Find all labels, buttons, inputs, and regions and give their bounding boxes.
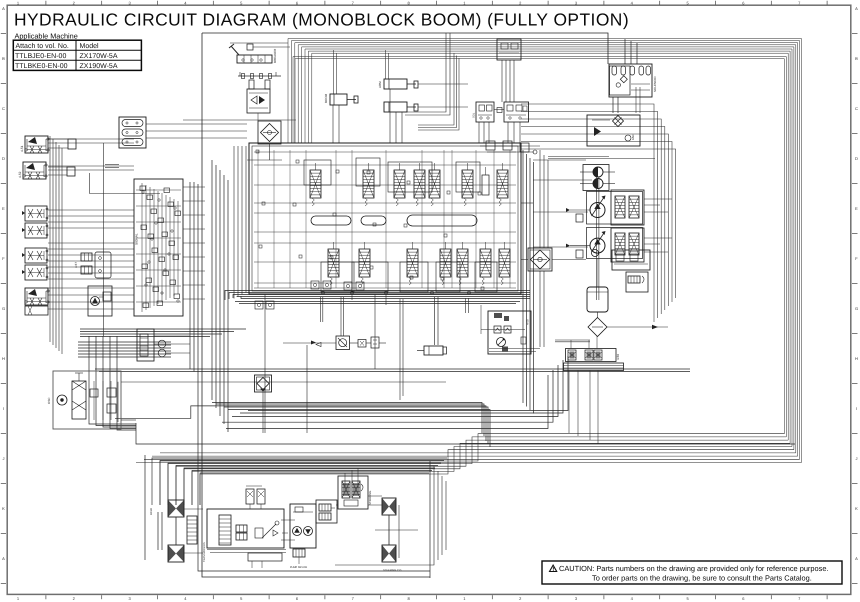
svg-text:AXLE: AXLE — [149, 508, 153, 515]
svg-text:ZX190W-5A: ZX190W-5A — [80, 63, 118, 70]
svg-text:E: E — [2, 206, 5, 211]
svg-text:4-51: 4-51 — [20, 145, 24, 152]
svg-text:D: D — [2, 156, 5, 161]
svg-text:I: I — [3, 406, 4, 411]
svg-text:G: G — [2, 306, 5, 311]
svg-text:E: E — [855, 206, 858, 211]
svg-text:BREAKER: BREAKER — [273, 48, 277, 63]
svg-text:OSC: OSC — [47, 397, 51, 404]
svg-text:Model: Model — [80, 42, 100, 50]
svg-text:SOLENOID: SOLENOID — [653, 76, 657, 92]
svg-text:K: K — [855, 506, 858, 511]
svg-text:4-57: 4-57 — [74, 262, 78, 268]
svg-text:J: J — [856, 456, 858, 461]
svg-text:Applicable Machine: Applicable Machine — [15, 32, 78, 41]
svg-text:TTLBKE0-EN-00: TTLBKE0-EN-00 — [15, 63, 68, 70]
svg-text:H: H — [855, 356, 858, 361]
svg-text:BOOM: BOOM — [324, 93, 328, 103]
svg-text:TRANSMISSION: TRANSMISSION — [203, 542, 206, 562]
svg-text:4-52: 4-52 — [18, 171, 22, 178]
svg-text:PUMP DEVICE: PUMP DEVICE — [290, 566, 308, 569]
svg-text:A: A — [2, 6, 5, 11]
svg-text:To order parts on the drawing,: To order parts on the drawing, be sure t… — [592, 574, 812, 583]
svg-text:SOL: SOL — [473, 112, 476, 118]
svg-text:FAN: FAN — [631, 135, 635, 140]
svg-text:C: C — [855, 106, 858, 111]
svg-text:HYDRAULIC CIRCUIT DIAGRAM (MON: HYDRAULIC CIRCUIT DIAGRAM (MONOBLOCK BOO… — [14, 9, 629, 29]
svg-text:Attach to vol. No.: Attach to vol. No. — [16, 42, 69, 50]
svg-text:CAUTION: Parts numbers on the: CAUTION: Parts numbers on the drawing ar… — [559, 564, 828, 573]
svg-text:A: A — [855, 556, 858, 561]
svg-text:K: K — [2, 506, 5, 511]
svg-text:C: C — [2, 106, 5, 111]
svg-text:4-59: 4-59 — [526, 319, 530, 325]
svg-text:SIGNAL: SIGNAL — [135, 233, 139, 245]
svg-text:STEERING: STEERING — [368, 491, 372, 505]
svg-text:J: J — [3, 456, 5, 461]
svg-text:I: I — [856, 406, 857, 411]
svg-text:TTLBJE0-EN-00: TTLBJE0-EN-00 — [15, 53, 66, 60]
svg-text:G: G — [855, 306, 858, 311]
svg-text:H: H — [2, 356, 5, 361]
svg-text:ZX170W-5A: ZX170W-5A — [80, 53, 118, 60]
svg-text:A: A — [855, 6, 858, 11]
svg-text:B: B — [855, 56, 858, 61]
svg-text:4-58: 4-58 — [616, 354, 620, 360]
svg-text:A: A — [2, 556, 5, 561]
svg-text:ARM: ARM — [378, 81, 382, 88]
svg-text:D: D — [855, 156, 858, 161]
svg-text:STEERING CYL: STEERING CYL — [383, 569, 403, 572]
svg-text:B: B — [2, 56, 5, 61]
